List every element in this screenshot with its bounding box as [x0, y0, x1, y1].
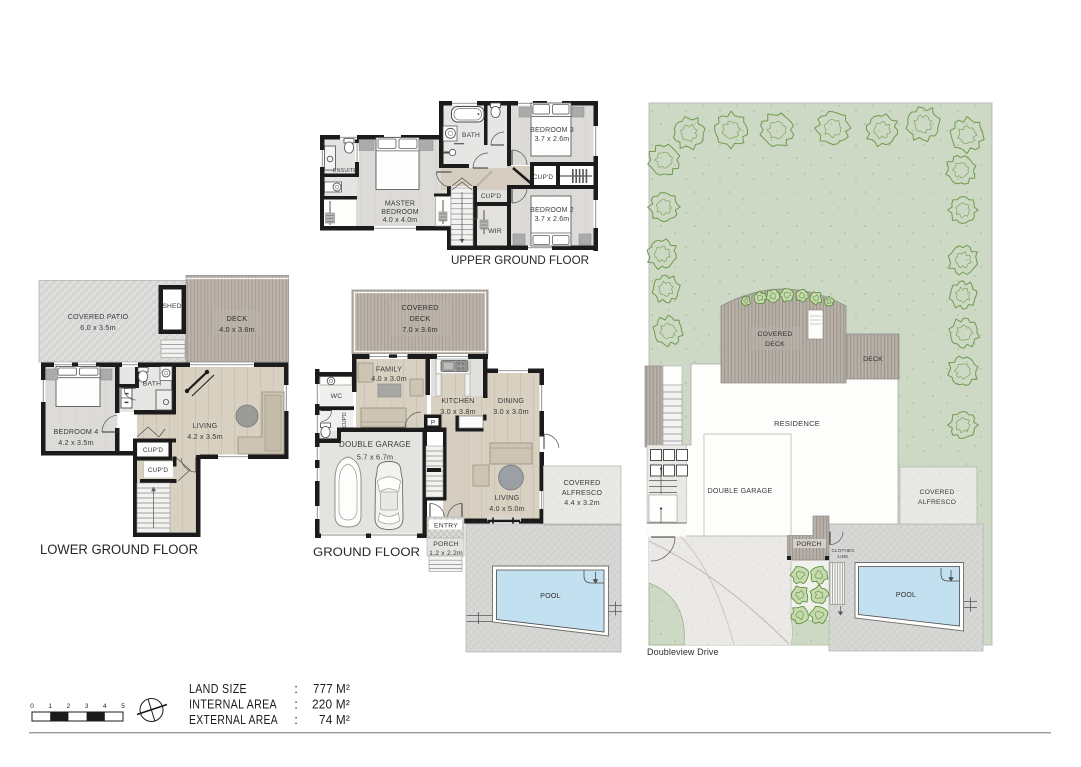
svg-text:INTERNAL AREA: INTERNAL AREA: [189, 697, 277, 712]
svg-text:POOL: POOL: [896, 592, 916, 599]
svg-text:4.4 x 3.2m: 4.4 x 3.2m: [564, 498, 600, 507]
svg-text:P: P: [431, 420, 436, 427]
svg-text:LINE: LINE: [837, 554, 848, 559]
svg-text:POOL: POOL: [540, 591, 561, 600]
svg-text:COVERED: COVERED: [402, 303, 439, 312]
svg-text:DECK: DECK: [765, 341, 785, 348]
svg-text:0: 0: [30, 703, 34, 710]
svg-text:4: 4: [103, 703, 107, 710]
svg-text:MASTER: MASTER: [385, 201, 415, 208]
svg-text:4.2 x 3.5m: 4.2 x 3.5m: [187, 432, 223, 441]
svg-text:FAMILY: FAMILY: [376, 365, 402, 374]
svg-text:3: 3: [85, 703, 89, 710]
svg-text:CUP'D: CUP'D: [148, 467, 169, 474]
svg-text:DOUBLE GARAGE: DOUBLE GARAGE: [339, 440, 411, 449]
svg-text:2: 2: [67, 703, 71, 710]
svg-text:CLOTHES: CLOTHES: [831, 548, 854, 553]
svg-text:BEDROOM: BEDROOM: [381, 209, 419, 216]
svg-text:WIR: WIR: [488, 228, 502, 235]
svg-text:BEDROOM 3: BEDROOM 3: [530, 127, 574, 134]
svg-text:LAND SIZE: LAND SIZE: [189, 681, 247, 696]
svg-text:RESIDENCE: RESIDENCE: [774, 419, 820, 428]
svg-text:CUP'D: CUP'D: [143, 447, 164, 454]
svg-text:EXTERNAL AREA: EXTERNAL AREA: [189, 712, 278, 727]
svg-text:4.0 x 3.6m: 4.0 x 3.6m: [219, 325, 255, 334]
svg-text:UPPER GROUND FLOOR: UPPER GROUND FLOOR: [451, 253, 589, 267]
svg-text:ALFRESCO: ALFRESCO: [562, 488, 603, 497]
svg-text:4.2 x 3.5m: 4.2 x 3.5m: [58, 438, 94, 447]
svg-text:COVERED: COVERED: [757, 331, 792, 338]
svg-text:LIVING: LIVING: [495, 493, 520, 502]
svg-text:4.0 x 4.0m: 4.0 x 4.0m: [383, 217, 418, 224]
svg-text:1: 1: [48, 703, 52, 710]
svg-text:DECK: DECK: [227, 314, 248, 323]
svg-text:3.7 x 2.6m: 3.7 x 2.6m: [535, 136, 570, 143]
svg-text:DINING: DINING: [498, 396, 525, 405]
svg-text::: :: [294, 697, 298, 712]
svg-text:5: 5: [121, 703, 125, 710]
svg-text:BATH: BATH: [143, 381, 161, 388]
svg-text:220 M²: 220 M²: [312, 697, 350, 712]
svg-text:5.7 x 6.7m: 5.7 x 6.7m: [357, 453, 394, 462]
svg-text:BATH: BATH: [462, 132, 480, 139]
svg-text:WC: WC: [331, 393, 343, 400]
svg-text:Doubleview Drive: Doubleview Drive: [647, 647, 719, 657]
svg-text:777 M²: 777 M²: [313, 681, 350, 696]
svg-text::: :: [294, 681, 298, 696]
svg-text:7.0 x 3.6m: 7.0 x 3.6m: [402, 325, 438, 334]
svg-text:LIVING: LIVING: [193, 421, 218, 430]
svg-text:CUP'D: CUP'D: [533, 174, 554, 181]
svg-text:COVERED PATIO: COVERED PATIO: [68, 312, 129, 321]
svg-text:LOWER GROUND FLOOR: LOWER GROUND FLOOR: [40, 542, 198, 558]
svg-text:CUP'D: CUP'D: [481, 193, 502, 200]
svg-text:74 M²: 74 M²: [319, 712, 350, 727]
svg-text:PORCH: PORCH: [433, 541, 459, 548]
svg-text:KITCHEN: KITCHEN: [442, 396, 475, 405]
svg-text:ALFRESCO: ALFRESCO: [918, 499, 956, 506]
svg-text:CUP'D: CUP'D: [342, 412, 348, 428]
svg-text:BEDROOM 4: BEDROOM 4: [54, 427, 99, 436]
svg-text:COVERED: COVERED: [919, 489, 954, 496]
svg-text:ENSUITE: ENSUITE: [333, 168, 357, 174]
svg-text:DOUBLE GARAGE: DOUBLE GARAGE: [708, 486, 773, 495]
svg-text:4.0 x 3.0m: 4.0 x 3.0m: [371, 374, 407, 383]
svg-text:3.7 x 2.6m: 3.7 x 2.6m: [535, 216, 570, 223]
svg-text:PORCH: PORCH: [797, 541, 822, 548]
svg-text:BEDROOM 2: BEDROOM 2: [530, 207, 574, 214]
svg-text:3.0 x 3.8m: 3.0 x 3.8m: [440, 407, 476, 416]
svg-text:DECK: DECK: [863, 356, 883, 363]
svg-text::: :: [294, 712, 298, 727]
svg-text:ENTRY: ENTRY: [434, 523, 458, 530]
svg-text:GROUND FLOOR: GROUND FLOOR: [313, 545, 420, 559]
svg-text:COVERED: COVERED: [564, 478, 601, 487]
svg-text:SHED: SHED: [162, 303, 181, 310]
svg-text:DECK: DECK: [410, 314, 431, 323]
svg-text:4.0 x 5.0m: 4.0 x 5.0m: [489, 504, 525, 513]
svg-text:3.0 x 3.0m: 3.0 x 3.0m: [493, 407, 529, 416]
svg-text:6.0 x 3.5m: 6.0 x 3.5m: [80, 323, 116, 332]
